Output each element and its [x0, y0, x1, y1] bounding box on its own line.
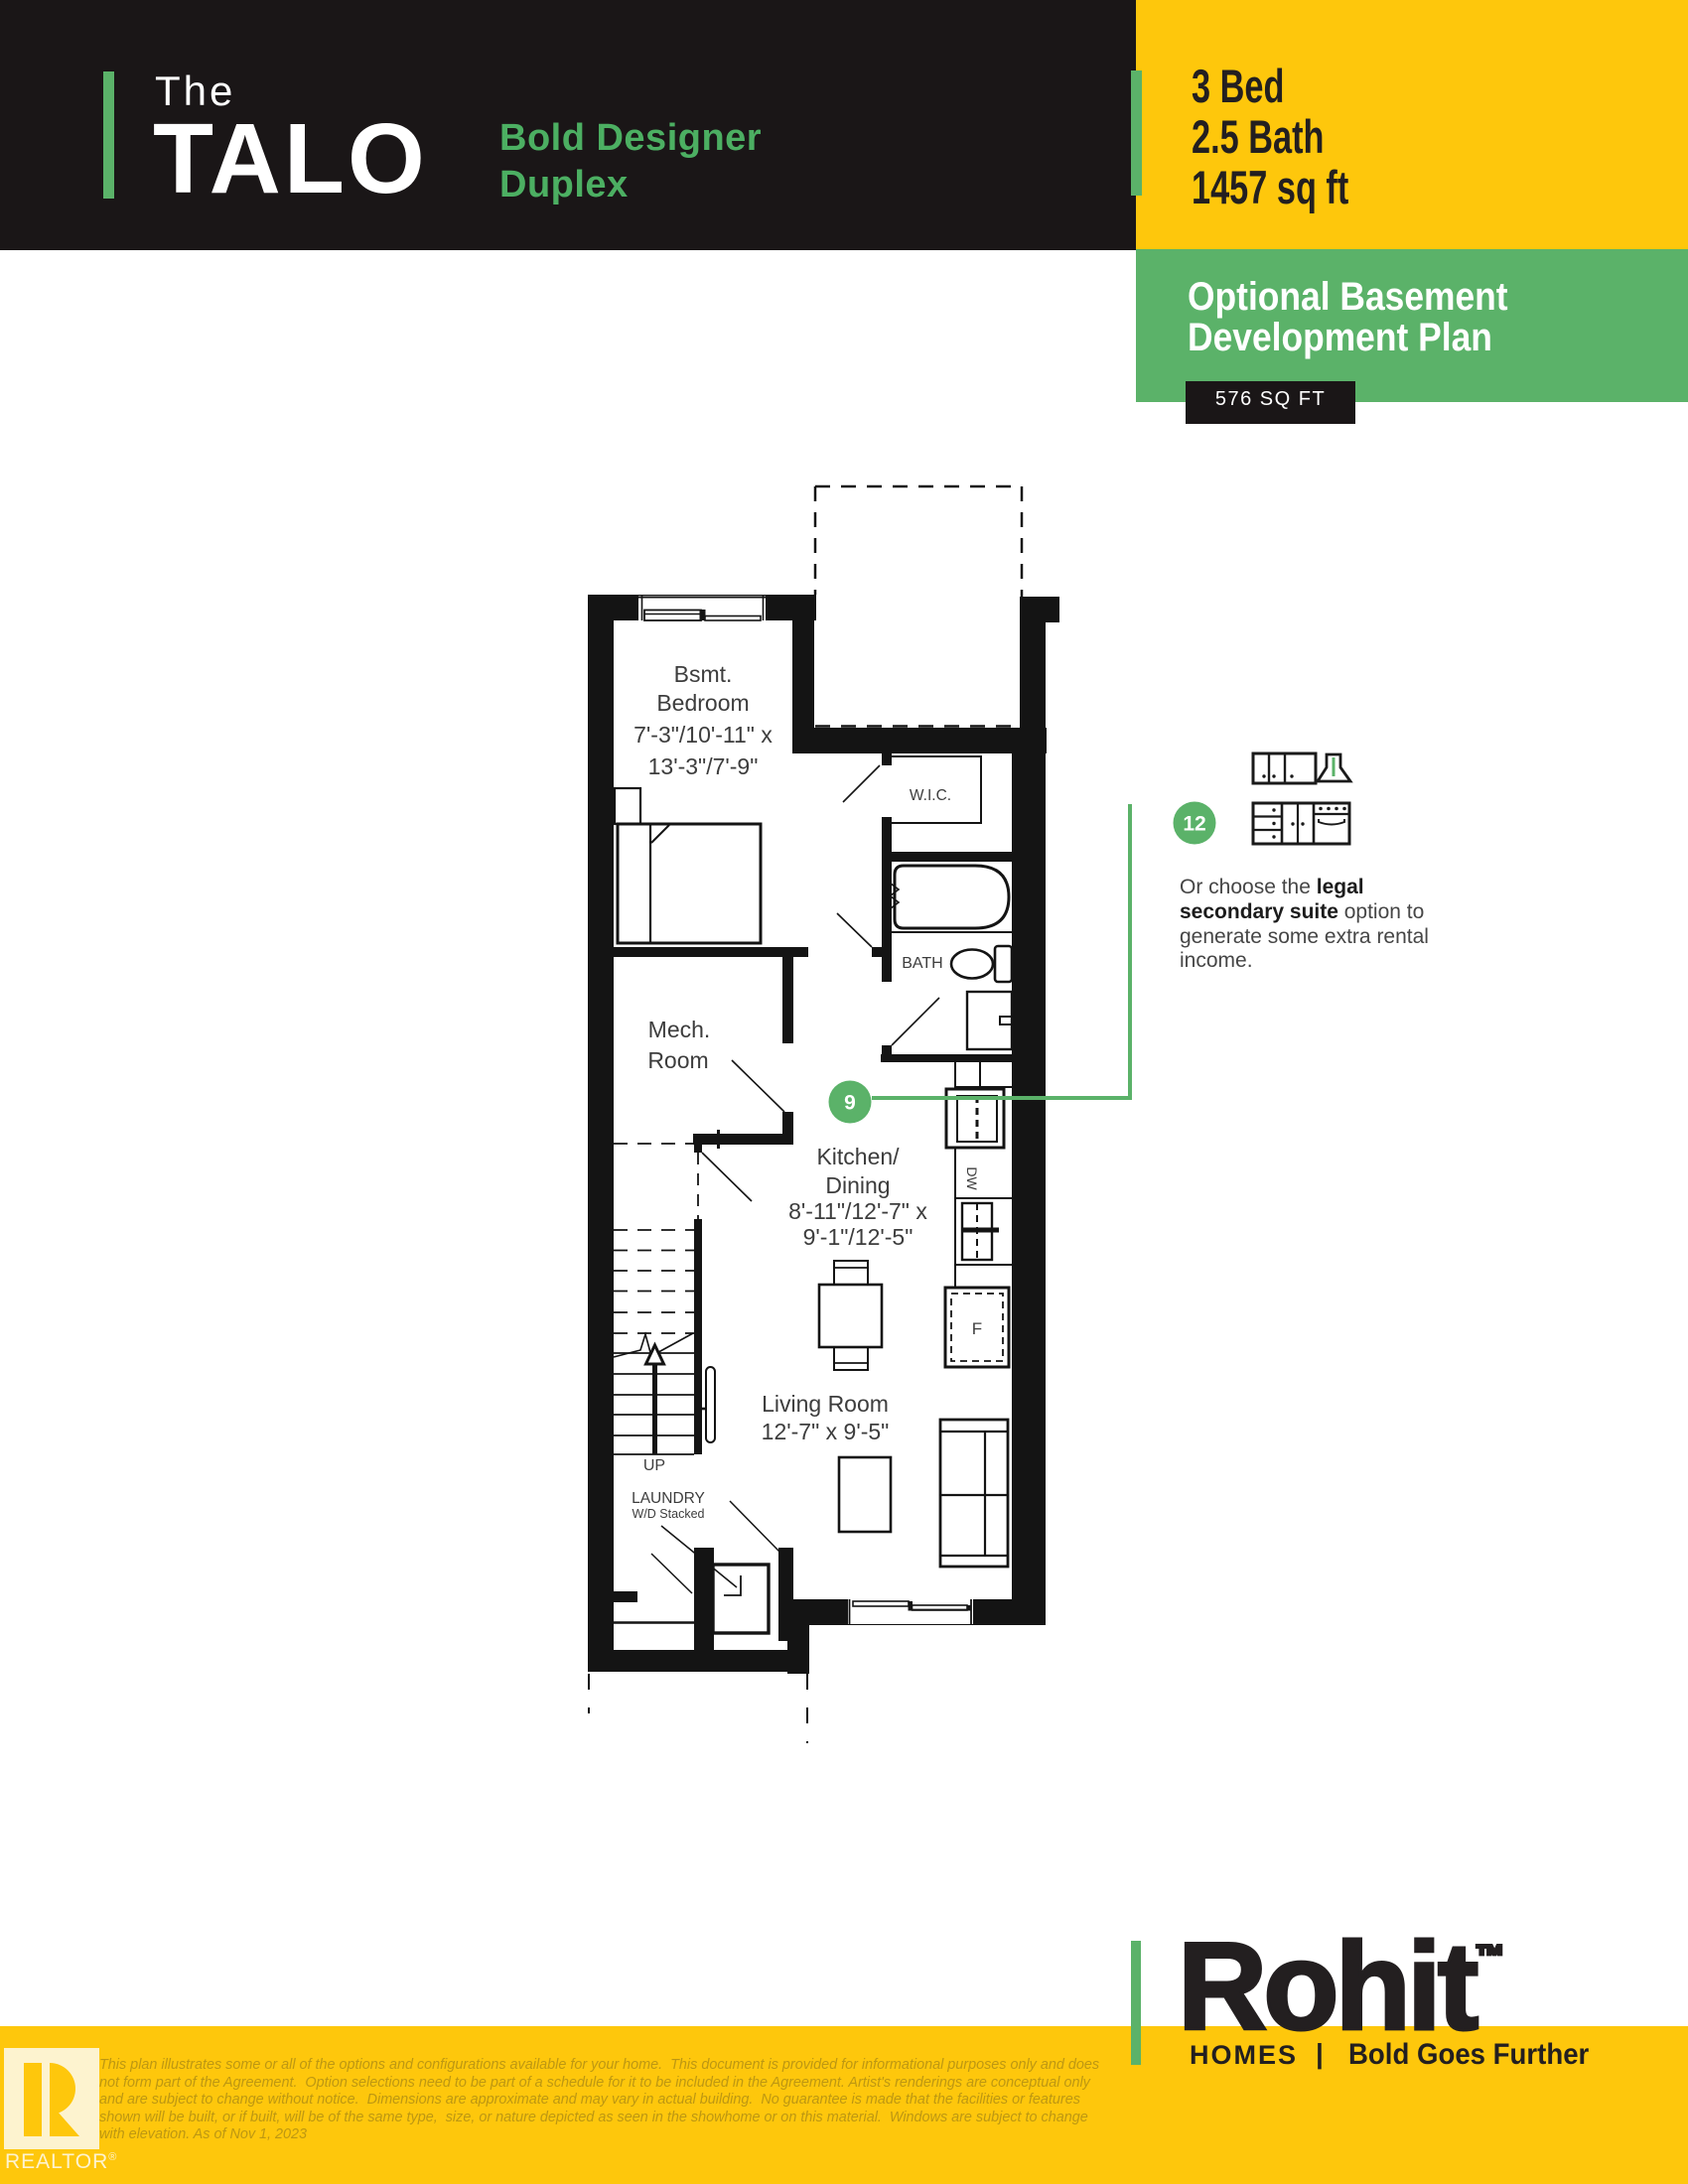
svg-text:W/D Stacked: W/D Stacked	[633, 1507, 705, 1521]
svg-text:Bsmt.: Bsmt.	[674, 661, 733, 687]
svg-text:F: F	[972, 1319, 982, 1338]
svg-text:13'-3"/7'-9": 13'-3"/7'-9"	[648, 753, 759, 779]
svg-text:Bedroom: Bedroom	[656, 690, 749, 716]
svg-text:9: 9	[844, 1092, 856, 1115]
svg-text:12'-7" x 9'-5": 12'-7" x 9'-5"	[762, 1419, 890, 1444]
svg-text:W.I.C.: W.I.C.	[910, 787, 951, 804]
svg-text:Living Room: Living Room	[762, 1391, 889, 1417]
svg-text:DW: DW	[964, 1166, 980, 1190]
svg-text:Dining: Dining	[825, 1172, 890, 1198]
svg-text:UP: UP	[643, 1457, 665, 1474]
svg-text:Mech.: Mech.	[648, 1017, 711, 1042]
svg-text:BATH: BATH	[902, 955, 942, 972]
svg-text:Kitchen/: Kitchen/	[816, 1144, 900, 1169]
svg-text:7'-3"/10'-11" x: 7'-3"/10'-11" x	[633, 722, 773, 748]
svg-text:LAUNDRY: LAUNDRY	[632, 1490, 705, 1507]
svg-text:12: 12	[1183, 813, 1205, 836]
svg-text:9'-1"/12'-5": 9'-1"/12'-5"	[803, 1224, 914, 1250]
svg-text:Room: Room	[647, 1047, 708, 1073]
svg-text:8'-11"/12'-7" x: 8'-11"/12'-7" x	[788, 1198, 927, 1224]
